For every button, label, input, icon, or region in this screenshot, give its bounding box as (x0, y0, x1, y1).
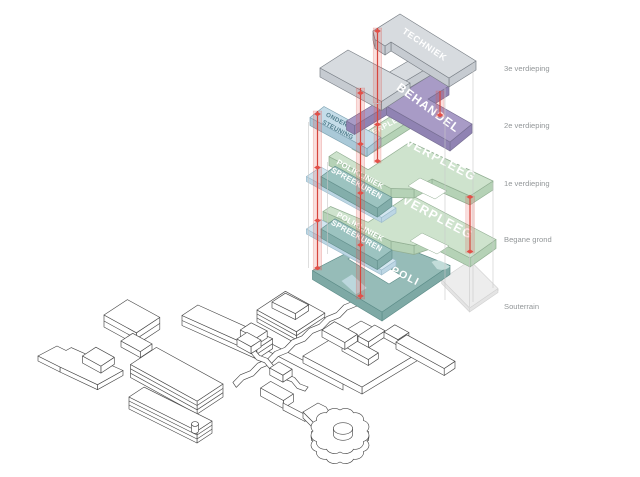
svg-text:1e verdieping: 1e verdieping (504, 179, 550, 188)
svg-text:Begane grond: Begane grond (504, 235, 552, 244)
svg-text:3e verdieping: 3e verdieping (504, 64, 550, 73)
svg-text:2e verdieping: 2e verdieping (504, 121, 550, 130)
svg-text:Souterrain: Souterrain (504, 302, 539, 311)
